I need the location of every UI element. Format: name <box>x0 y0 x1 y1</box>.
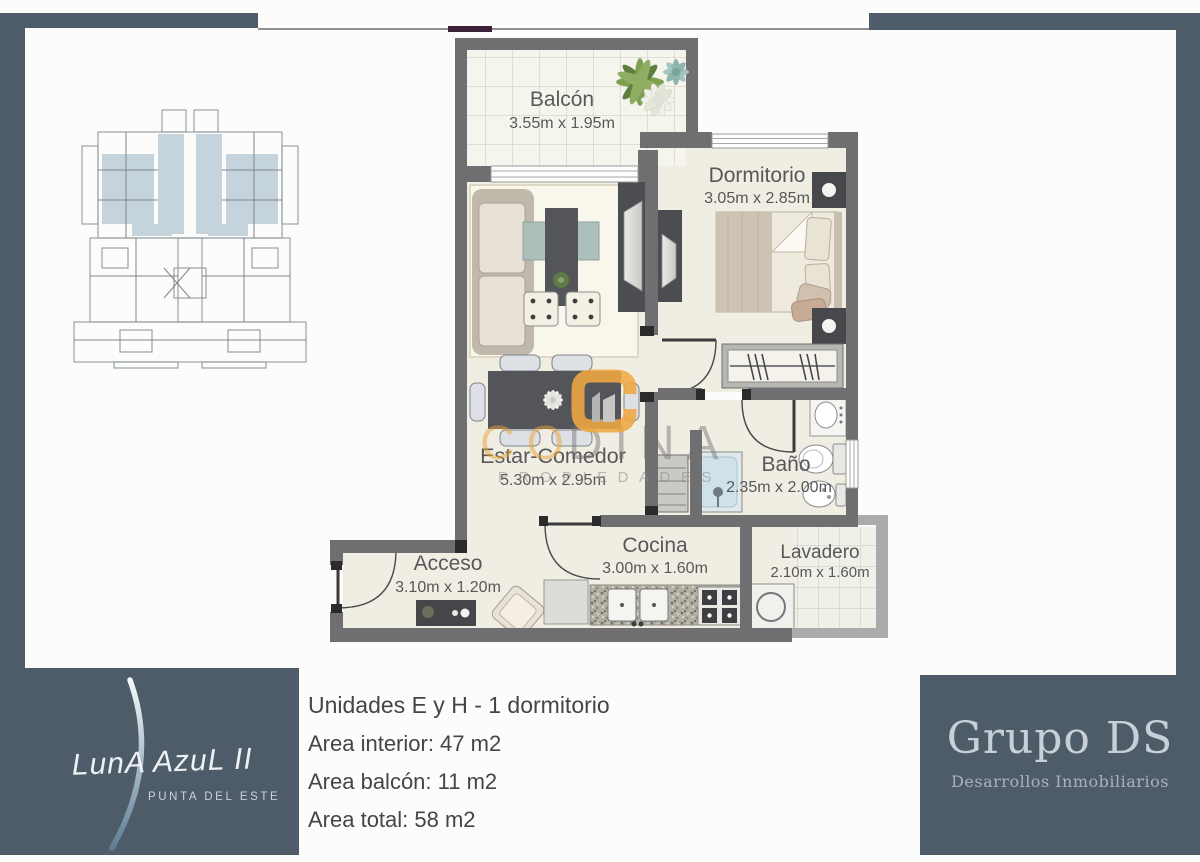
dims-dormitorio: 3.05m x 2.85m <box>704 190 810 207</box>
frame-right-strip <box>1176 13 1200 675</box>
label-dormitorio: Dormitorio <box>709 164 806 187</box>
flyer-page: Balcón 3.55m x 1.95m Dormitorio 3.05m x … <box>0 0 1200 862</box>
unit-title: Unidades E y H - 1 dormitorio <box>308 692 610 719</box>
brand-right-box: Grupo DS Desarrollos Inmobiliarios <box>920 675 1200 855</box>
floor-plan: Balcón 3.55m x 1.95m Dormitorio 3.05m x … <box>325 30 905 655</box>
brand-left-subtitle: PUNTA DEL ESTE <box>148 791 280 803</box>
label-lavadero: Lavadero <box>780 542 859 563</box>
frame-top-left-bar <box>0 13 258 28</box>
frame-top-right-bar <box>869 13 1200 30</box>
label-acceso: Acceso <box>414 552 483 575</box>
closet <box>722 344 843 388</box>
brand-left-wordmark: LunA AzuL II <box>71 742 253 781</box>
dims-balcon: 3.55m x 1.95m <box>509 115 615 132</box>
label-bano: Baño <box>761 453 810 476</box>
stove <box>698 587 742 625</box>
label-cocina: Cocina <box>622 534 688 557</box>
brand-left-box: LunA AzuL II PUNTA DEL ESTE <box>0 668 299 855</box>
area-interior: Area interior: 47 m2 <box>308 731 501 757</box>
area-balcon: Area balcón: 11 m2 <box>308 769 497 795</box>
key-plan-outline <box>74 110 306 368</box>
watermark-name-left: CO <box>480 417 576 470</box>
frame-left-strip <box>0 13 25 668</box>
tv-unit-living <box>618 180 648 312</box>
area-total: Area total: 58 m2 <box>308 807 476 833</box>
bathroom-window <box>846 440 858 488</box>
luna-azul-logo: LunA AzuL II PUNTA DEL ESTE <box>0 668 299 855</box>
dims-lavadero: 2.10m x 1.60m <box>770 564 869 581</box>
label-balcon: Balcón <box>530 88 594 111</box>
tv-unit-bedroom <box>658 210 682 302</box>
brand-right-name: Grupo DS <box>920 713 1200 764</box>
watermark-tagline: PROPIEDADES <box>498 469 722 486</box>
dims-bano: 2.35m x 2.00m <box>726 479 832 496</box>
kitchen-fixtures <box>544 580 794 630</box>
sofa <box>472 189 534 355</box>
bathroom-sink <box>810 394 846 436</box>
living-window <box>491 166 638 182</box>
key-plan-highlight <box>102 134 278 236</box>
dims-acceso: 3.10m x 1.20m <box>395 579 501 596</box>
dims-cocina: 3.00m x 1.60m <box>602 560 708 577</box>
washing-machine <box>748 584 794 630</box>
fridge <box>544 580 588 624</box>
bed <box>716 212 842 322</box>
bedroom-window <box>712 134 828 148</box>
brand-right-subtitle: Desarrollos Inmobiliarios <box>920 772 1200 791</box>
building-key-plan <box>62 108 318 370</box>
